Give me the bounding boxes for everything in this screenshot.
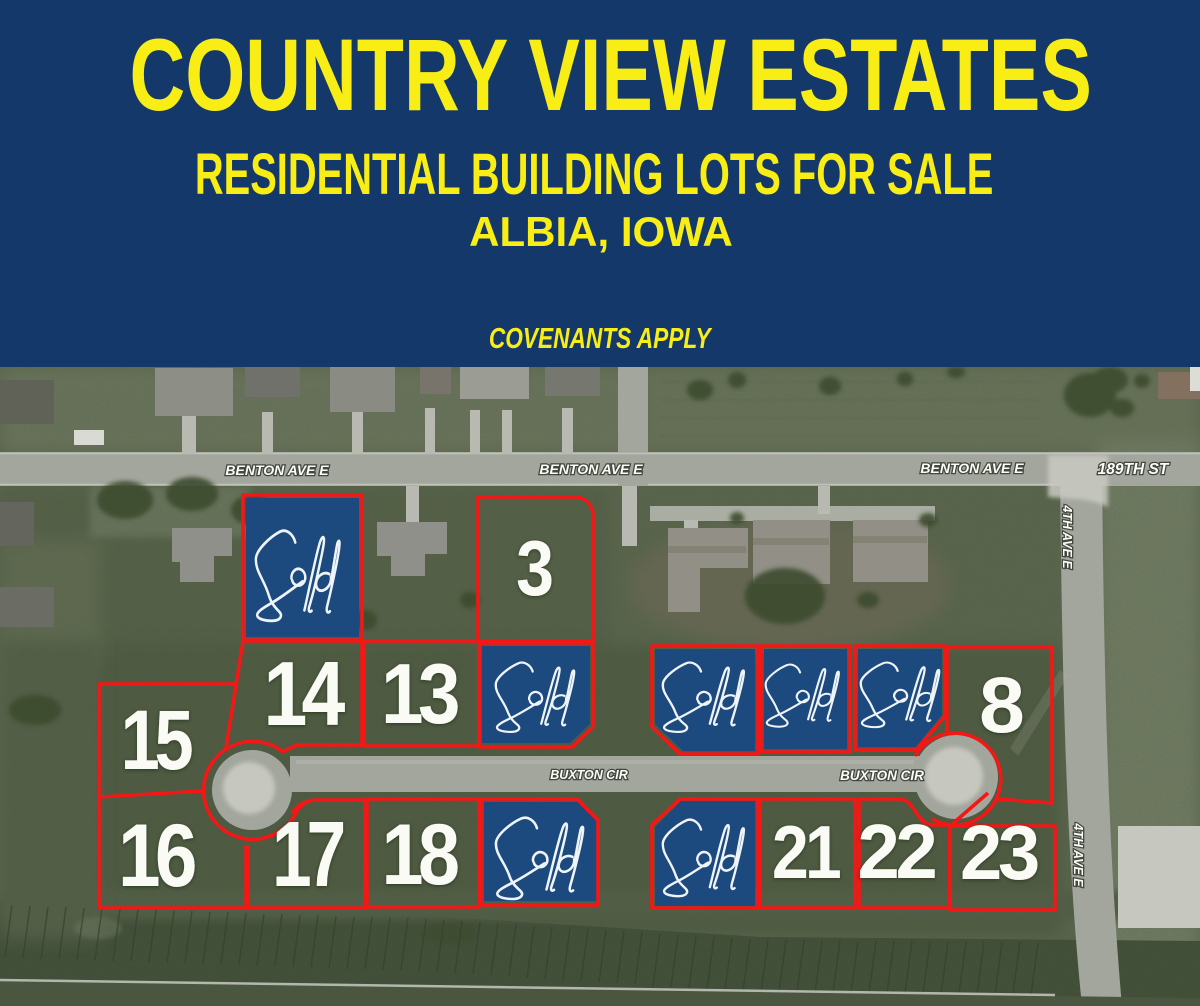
svg-text:8: 8 [979, 661, 1025, 749]
svg-text:BUXTON CIR: BUXTON CIR [550, 768, 628, 782]
svg-text:14: 14 [263, 644, 344, 746]
svg-text:189TH ST: 189TH ST [1098, 461, 1170, 478]
svg-text:BENTON AVE E: BENTON AVE E [920, 460, 1024, 476]
svg-text:22: 22 [858, 810, 936, 895]
svg-text:13: 13 [381, 647, 458, 742]
svg-text:18: 18 [382, 807, 459, 903]
svg-text:BENTON AVE E: BENTON AVE E [539, 461, 643, 477]
svg-text:23: 23 [960, 811, 1038, 896]
svg-text:17: 17 [272, 802, 344, 906]
svg-text:BENTON AVE E: BENTON AVE E [225, 462, 329, 478]
svg-text:15: 15 [121, 694, 192, 787]
svg-text:4TH AVE E: 4TH AVE E [1071, 822, 1085, 887]
svg-text:21: 21 [772, 811, 840, 895]
svg-text:4TH AVE E: 4TH AVE E [1060, 504, 1074, 569]
svg-text:3: 3 [516, 526, 554, 612]
svg-text:BUXTON CIR: BUXTON CIR [840, 768, 924, 783]
svg-text:16: 16 [118, 805, 195, 905]
